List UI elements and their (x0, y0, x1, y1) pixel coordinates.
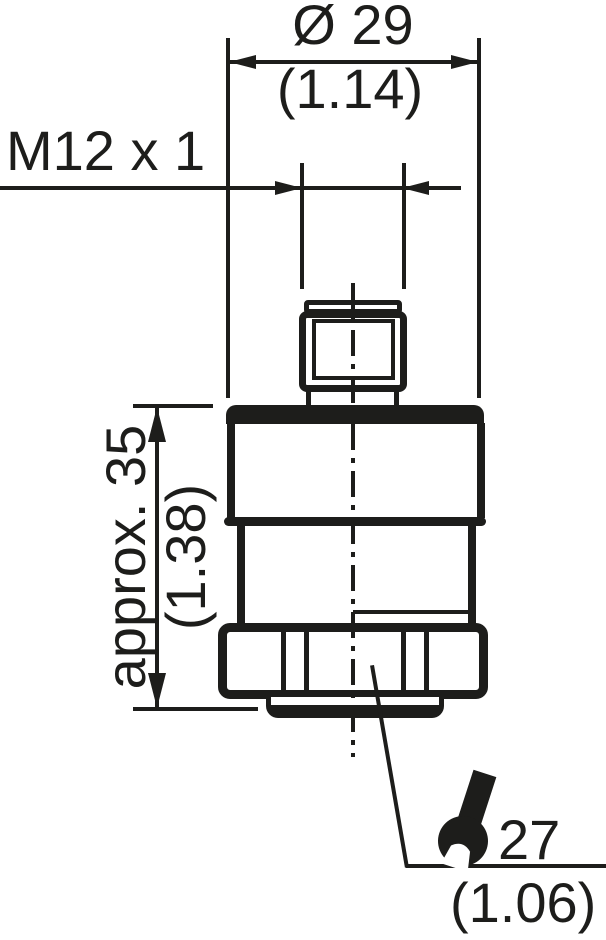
upper-housing-right-wall (477, 423, 485, 518)
upper-housing-left-wall (227, 423, 235, 518)
arrowhead-thread-right (402, 181, 429, 195)
arrowhead-thread-left (275, 181, 302, 195)
hex-facet-line-1 (281, 632, 286, 690)
technical-drawing: Ø 29 (1.14) M12 x 1 approx. 35 (1.38) (0, 0, 606, 940)
height-dimension-imperial-label: (1.38) (157, 387, 215, 727)
wrench-icon (418, 772, 504, 868)
centerline (351, 283, 355, 757)
diameter-dimension-imperial-label: (1.14) (230, 61, 470, 117)
wrench-flats-metric-label: 27 (498, 812, 560, 868)
arrowhead-diameter-right (451, 55, 478, 69)
base-flange (266, 692, 444, 718)
lower-housing-step-edge (353, 610, 471, 614)
arrowhead-diameter-left (229, 55, 256, 69)
body-top-flange (226, 405, 484, 424)
extension-line-diameter-right (477, 38, 481, 398)
wrench-flats-imperial-label: (1.06) (450, 875, 596, 931)
diameter-dimension-metric-label: Ø 29 (233, 0, 473, 53)
height-dimension-metric-label: approx. 35 (97, 387, 155, 727)
thread-dimension-label: M12 x 1 (6, 123, 205, 179)
dimension-line-thread (0, 186, 461, 190)
upper-housing-bottom-edge (224, 517, 486, 526)
hex-facet-line-2 (304, 632, 309, 690)
stud-neck-right-edge (394, 390, 399, 406)
hex-facet-line-3 (401, 632, 406, 690)
dimension-line-diameter (229, 60, 478, 64)
lower-housing-left-wall (237, 524, 245, 625)
extension-line-diameter-left (226, 38, 230, 398)
extension-line-thread-right (402, 163, 406, 289)
hex-facet-line-4 (424, 632, 429, 690)
stud-neck-left-edge (306, 390, 311, 406)
extension-line-thread-left (300, 163, 304, 289)
